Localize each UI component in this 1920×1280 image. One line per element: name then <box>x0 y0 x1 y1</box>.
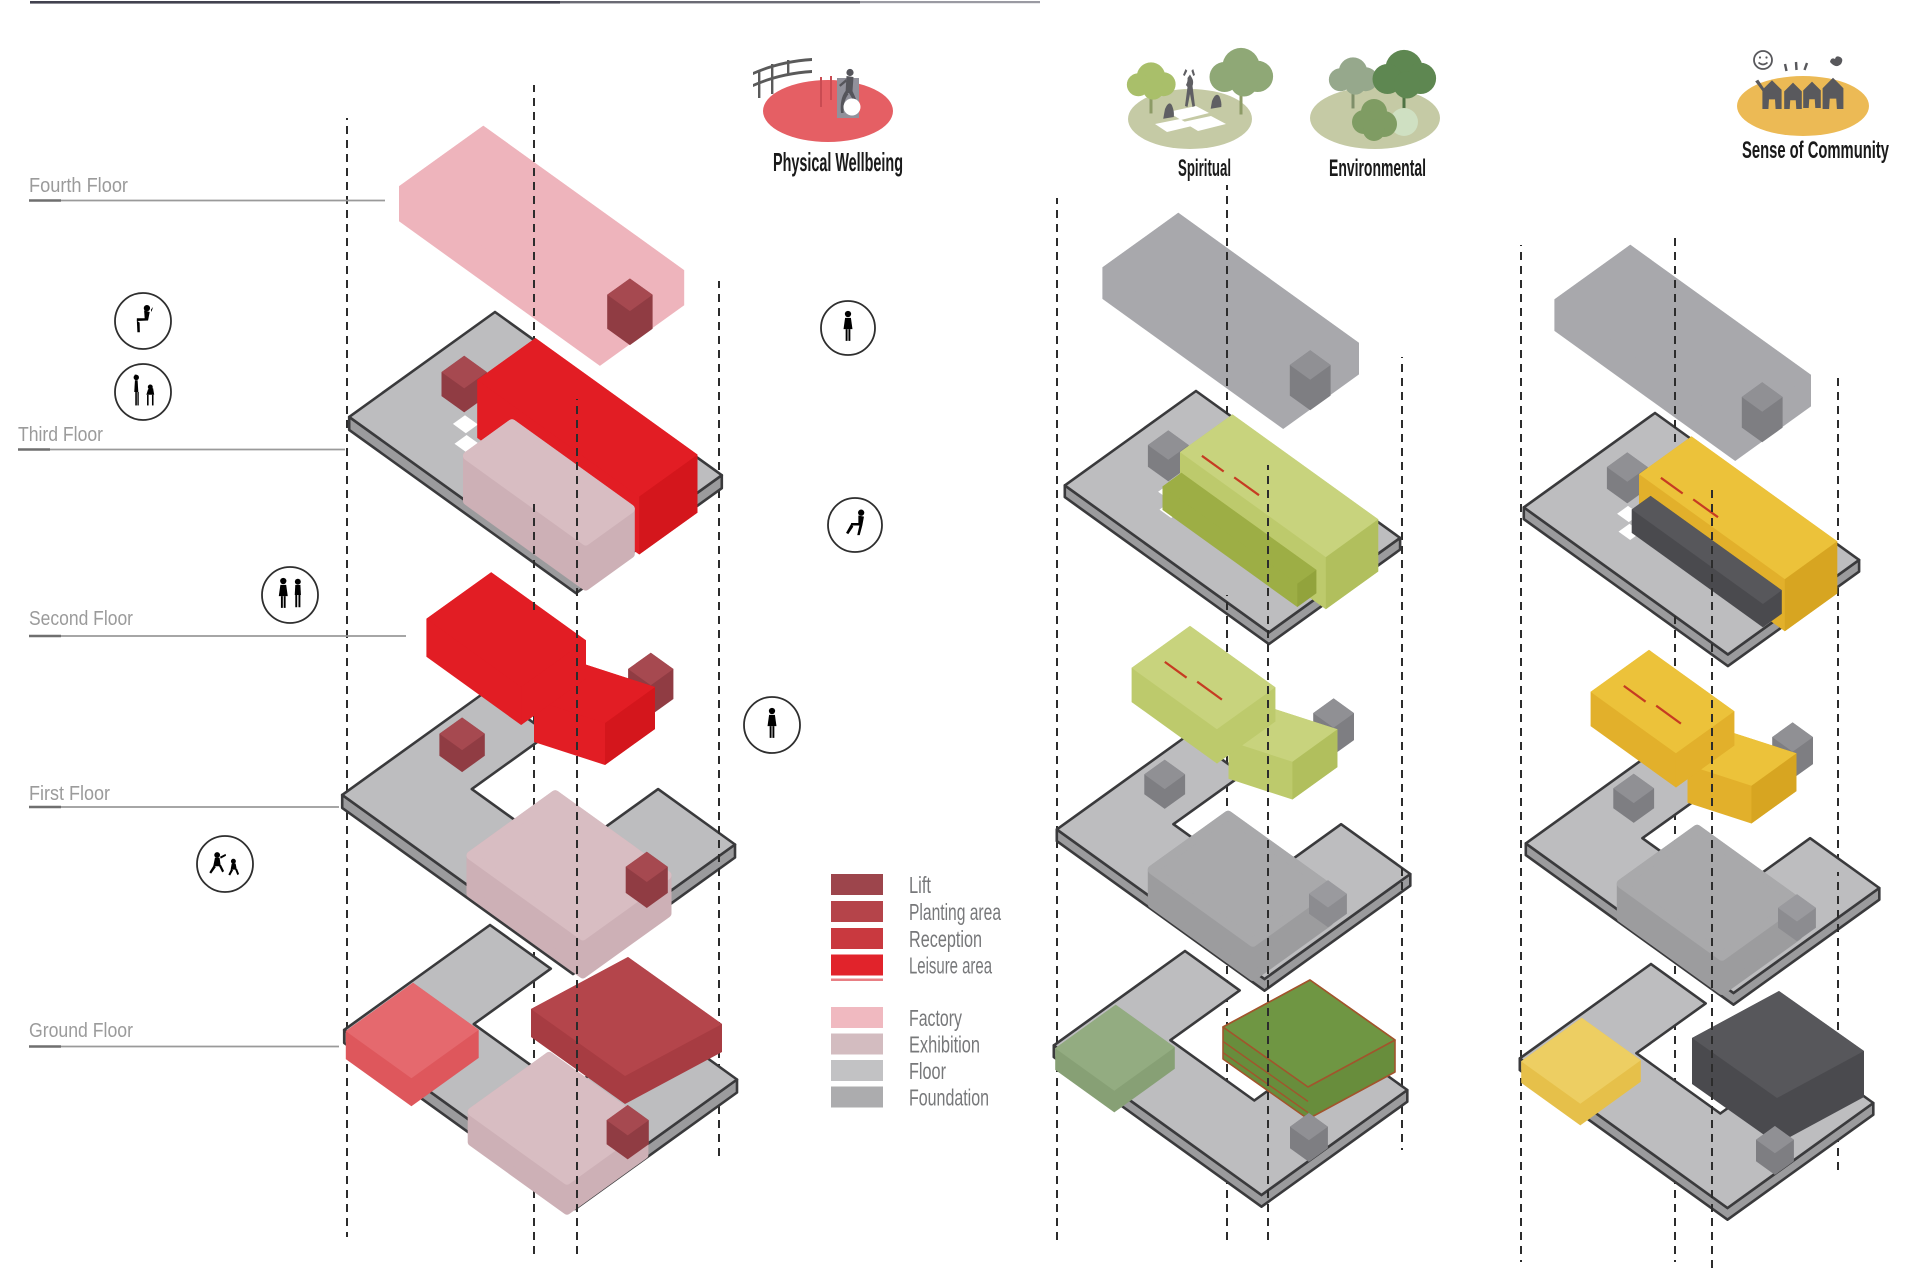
svg-text:Lift: Lift <box>909 872 931 898</box>
svg-text:Third Floor: Third Floor <box>18 424 103 446</box>
svg-text:Planting area: Planting area <box>909 899 1001 925</box>
svg-text:Sense of Community: Sense of Community <box>1742 137 1889 164</box>
svg-text:Environmental: Environmental <box>1329 155 1426 182</box>
svg-text:Fourth Floor: Fourth Floor <box>29 175 128 197</box>
svg-text:Ground Floor: Ground Floor <box>29 1020 133 1042</box>
svg-text:Reception: Reception <box>909 926 982 952</box>
svg-text:Second Floor: Second Floor <box>29 608 133 630</box>
svg-text:First Floor: First Floor <box>29 783 110 805</box>
svg-text:Spiritual: Spiritual <box>1178 155 1231 182</box>
svg-text:Physical Wellbeing: Physical Wellbeing <box>773 147 903 177</box>
svg-text:Foundation: Foundation <box>909 1085 989 1111</box>
svg-text:Floor: Floor <box>909 1058 946 1084</box>
svg-text:Leisure area: Leisure area <box>909 953 992 979</box>
svg-text:Factory: Factory <box>909 1005 962 1031</box>
svg-text:Exhibition: Exhibition <box>909 1032 980 1058</box>
